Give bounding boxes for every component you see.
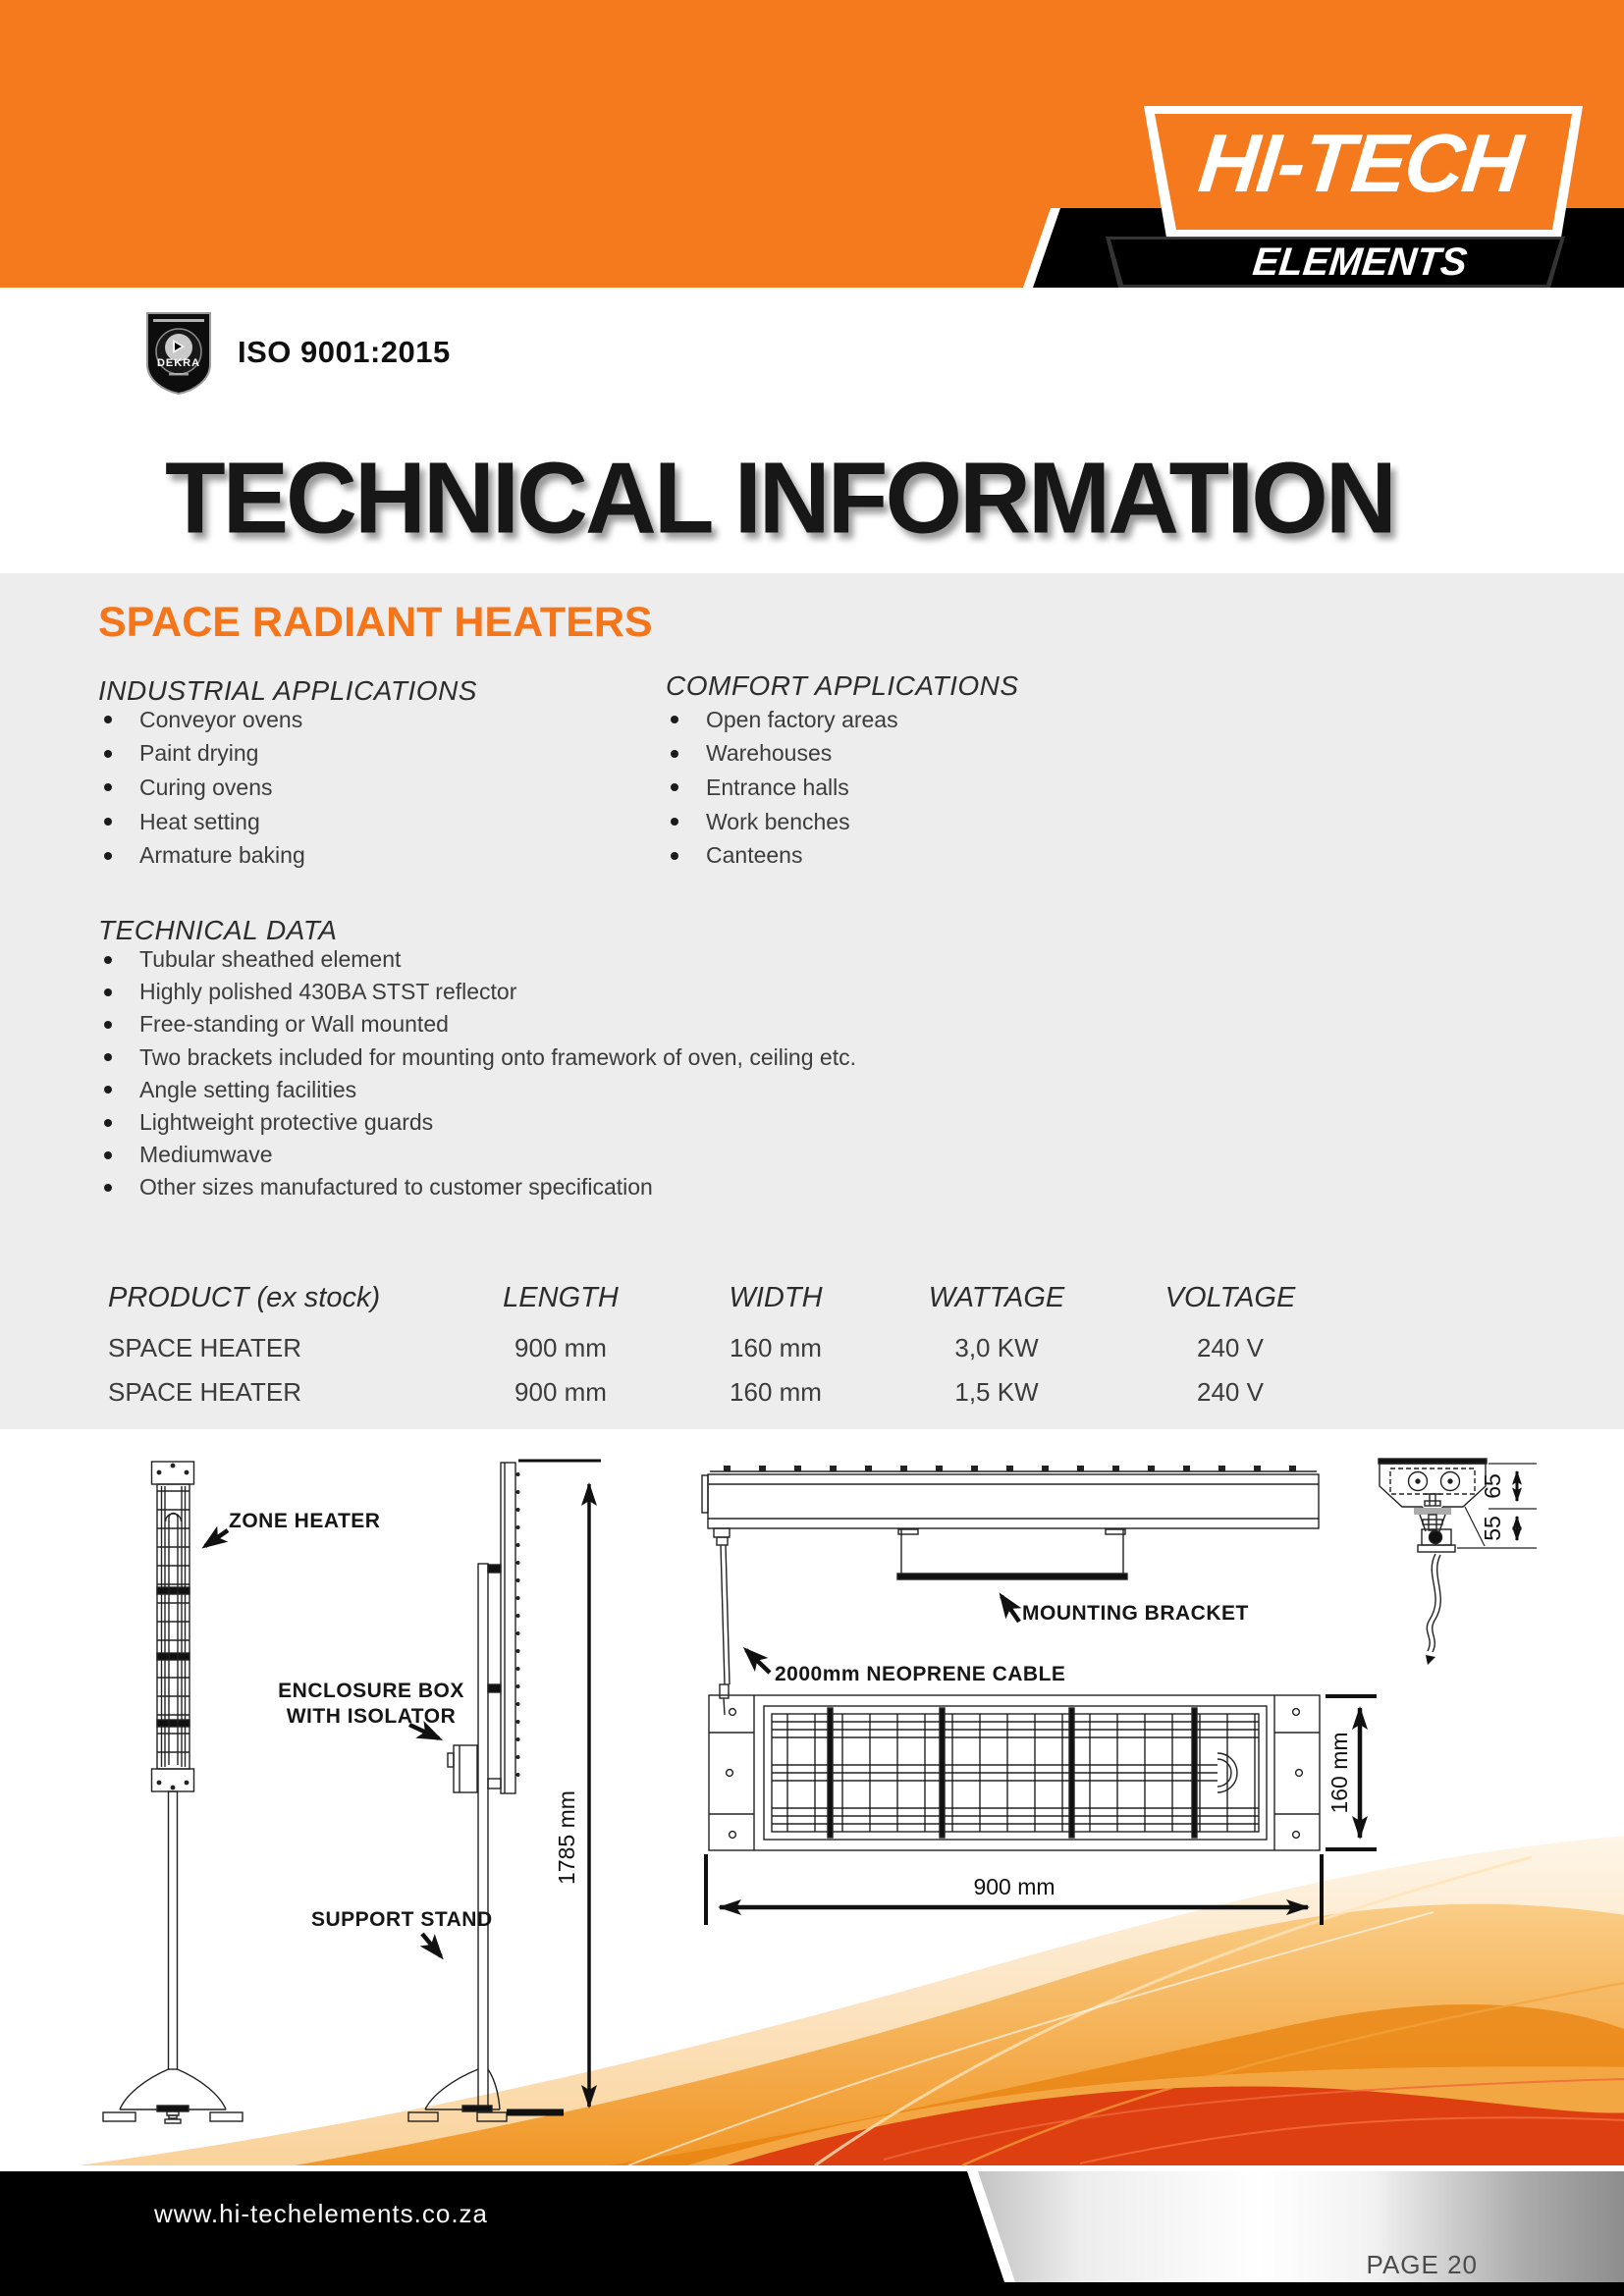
table-cell: 160 mm — [677, 1333, 874, 1363]
page-title: TECHNICAL INFORMATION — [165, 449, 1559, 550]
list-item: Curing ovens — [102, 771, 652, 805]
list-item-label: Armature baking — [139, 842, 305, 869]
dekra-badge-icon: DEKRA — [145, 310, 212, 397]
table-cell: 900 mm — [462, 1377, 659, 1408]
heater-width-dimension-label: 160 mm — [1326, 1732, 1352, 1813]
list-item-label: Curing ovens — [139, 774, 273, 801]
list-item-label: Open factory areas — [706, 707, 898, 733]
industrial-list: Conveyor ovens Paint drying Curing ovens… — [102, 703, 652, 873]
mounting-bracket-label: MOUNTING BRACKET — [1022, 1602, 1249, 1625]
list-item-label: Highly polished 430BA STST reflector — [139, 979, 516, 1005]
table-header-cell: WATTAGE — [889, 1282, 1105, 1314]
table-cell: 900 mm — [462, 1333, 659, 1363]
brand-wordmark-elements: ELEMENTS — [1181, 242, 1539, 282]
table-cell: 240 V — [1127, 1377, 1333, 1408]
heater-length-dimension-label: 900 mm — [973, 1874, 1055, 1899]
list-item-label: Canteens — [706, 842, 802, 869]
profile-bottom-dimension-label: 55 — [1480, 1516, 1505, 1541]
list-item: Paint drying — [102, 737, 652, 772]
support-stand-arrow — [422, 1934, 441, 1956]
dekra-badge-label: DEKRA — [157, 357, 200, 369]
list-item: Highly polished 430BA STST reflector — [102, 976, 1280, 1008]
list-item: Mediumwave — [102, 1139, 1280, 1171]
list-item-label: Tubular sheathed element — [139, 946, 401, 973]
stand-height-dimension-label: 1785 mm — [554, 1790, 579, 1885]
drawing-stand-front — [103, 1462, 243, 2123]
list-item-label: Heat setting — [139, 809, 260, 835]
list-item-label: Mediumwave — [139, 1142, 273, 1168]
technical-data-list: Tubular sheathed element Highly polished… — [102, 943, 1280, 1204]
mounting-bracket-arrow — [1001, 1596, 1019, 1622]
dimension-stand-height: 1785 mm — [507, 1461, 601, 2112]
list-item-label: Work benches — [706, 809, 850, 835]
page-number: PAGE 20 — [1257, 2250, 1478, 2280]
list-item: Warehouses — [669, 737, 1218, 772]
list-item: Entrance halls — [669, 771, 1218, 805]
table-header-cell: VOLTAGE — [1127, 1282, 1333, 1314]
list-item: Work benches — [669, 805, 1218, 839]
list-item-label: Entrance halls — [706, 774, 849, 801]
list-item: Two brackets included for mounting onto … — [102, 1041, 1280, 1074]
support-stand-label: SUPPORT STAND — [311, 1908, 493, 1931]
list-item-label: Free-standing or Wall mounted — [139, 1011, 449, 1038]
table-cell: 3,0 KW — [889, 1333, 1105, 1363]
table-cell: 240 V — [1127, 1333, 1333, 1363]
technical-drawings: 1785 mm ZONE HEATER ENCLOSURE BOX WITH I… — [0, 1435, 1624, 2171]
table-cell: 1,5 KW — [889, 1377, 1105, 1408]
list-item: Other sizes manufactured to customer spe… — [102, 1171, 1280, 1203]
table-header-cell: PRODUCT (ex stock) — [108, 1282, 432, 1314]
list-item: Conveyor ovens — [102, 703, 652, 737]
table-header-row: PRODUCT (ex stock) LENGTH WIDTH WATTAGE … — [0, 1282, 1624, 1315]
list-item: Heat setting — [102, 805, 652, 839]
table-row: SPACE HEATER 900 mm 160 mm 3,0 KW 240 V — [0, 1333, 1624, 1366]
list-item: Canteens — [669, 838, 1218, 873]
table-row: SPACE HEATER 900 mm 160 mm 1,5 KW 240 V — [0, 1377, 1624, 1411]
comfort-list: Open factory areas Warehouses Entrance h… — [669, 703, 1218, 873]
table-header-cell: LENGTH — [462, 1282, 659, 1314]
brand-wordmark-hitech: HI-TECH — [1155, 122, 1566, 204]
enclosure-box-label-line2: WITH ISOLATOR — [287, 1705, 457, 1728]
iso-certification-text: ISO 9001:2015 — [238, 335, 451, 370]
enclosure-box-label-line1: ENCLOSURE BOX — [278, 1680, 464, 1702]
drawing-heater-front — [709, 1695, 1320, 1850]
table-cell: 160 mm — [677, 1377, 874, 1408]
table-cell: SPACE HEATER — [108, 1333, 432, 1363]
zone-heater-label: ZONE HEATER — [229, 1510, 380, 1532]
comfort-heading: COMFORT APPLICATIONS — [666, 670, 1019, 702]
list-item-label: Conveyor ovens — [139, 707, 302, 733]
table-cell: SPACE HEATER — [108, 1377, 432, 1408]
list-item-label: Angle setting facilities — [139, 1077, 356, 1103]
drawing-stand-side — [408, 1463, 518, 2121]
section-heading: SPACE RADIANT HEATERS — [98, 599, 653, 647]
drawing-heater-profile — [1379, 1459, 1537, 1665]
list-item-label: Other sizes manufactured to customer spe… — [139, 1174, 653, 1201]
list-item-label: Lightweight protective guards — [139, 1109, 433, 1136]
list-item: Open factory areas — [669, 703, 1218, 737]
neoprene-cable-arrow — [746, 1650, 770, 1673]
website-link[interactable]: www.hi-techelements.co.za — [154, 2199, 488, 2229]
swoosh-graphic — [79, 1834, 1624, 2165]
list-item: Lightweight protective guards — [102, 1106, 1280, 1139]
list-item-label: Paint drying — [139, 740, 258, 767]
list-item: Armature baking — [102, 838, 652, 873]
datasheet-page: HI-TECH ELEMENTS DEKRA ISO 9001:2015 TEC… — [0, 0, 1624, 2296]
neoprene-cable-label: 2000mm NEOPRENE CABLE — [775, 1663, 1065, 1685]
dimension-profile: 65 55 — [1480, 1471, 1517, 1541]
table-header-cell: WIDTH — [677, 1282, 874, 1314]
list-item-label: Warehouses — [706, 740, 832, 767]
profile-top-dimension-label: 65 — [1480, 1473, 1505, 1499]
zone-heater-arrow — [205, 1530, 228, 1546]
list-item-label: Two brackets included for mounting onto … — [139, 1044, 856, 1071]
technical-data-heading: TECHNICAL DATA — [98, 915, 337, 946]
list-item: Tubular sheathed element — [102, 943, 1280, 976]
list-item: Angle setting facilities — [102, 1074, 1280, 1106]
list-item: Free-standing or Wall mounted — [102, 1008, 1280, 1041]
dimension-heater-width: 160 mm — [1326, 1696, 1377, 1849]
